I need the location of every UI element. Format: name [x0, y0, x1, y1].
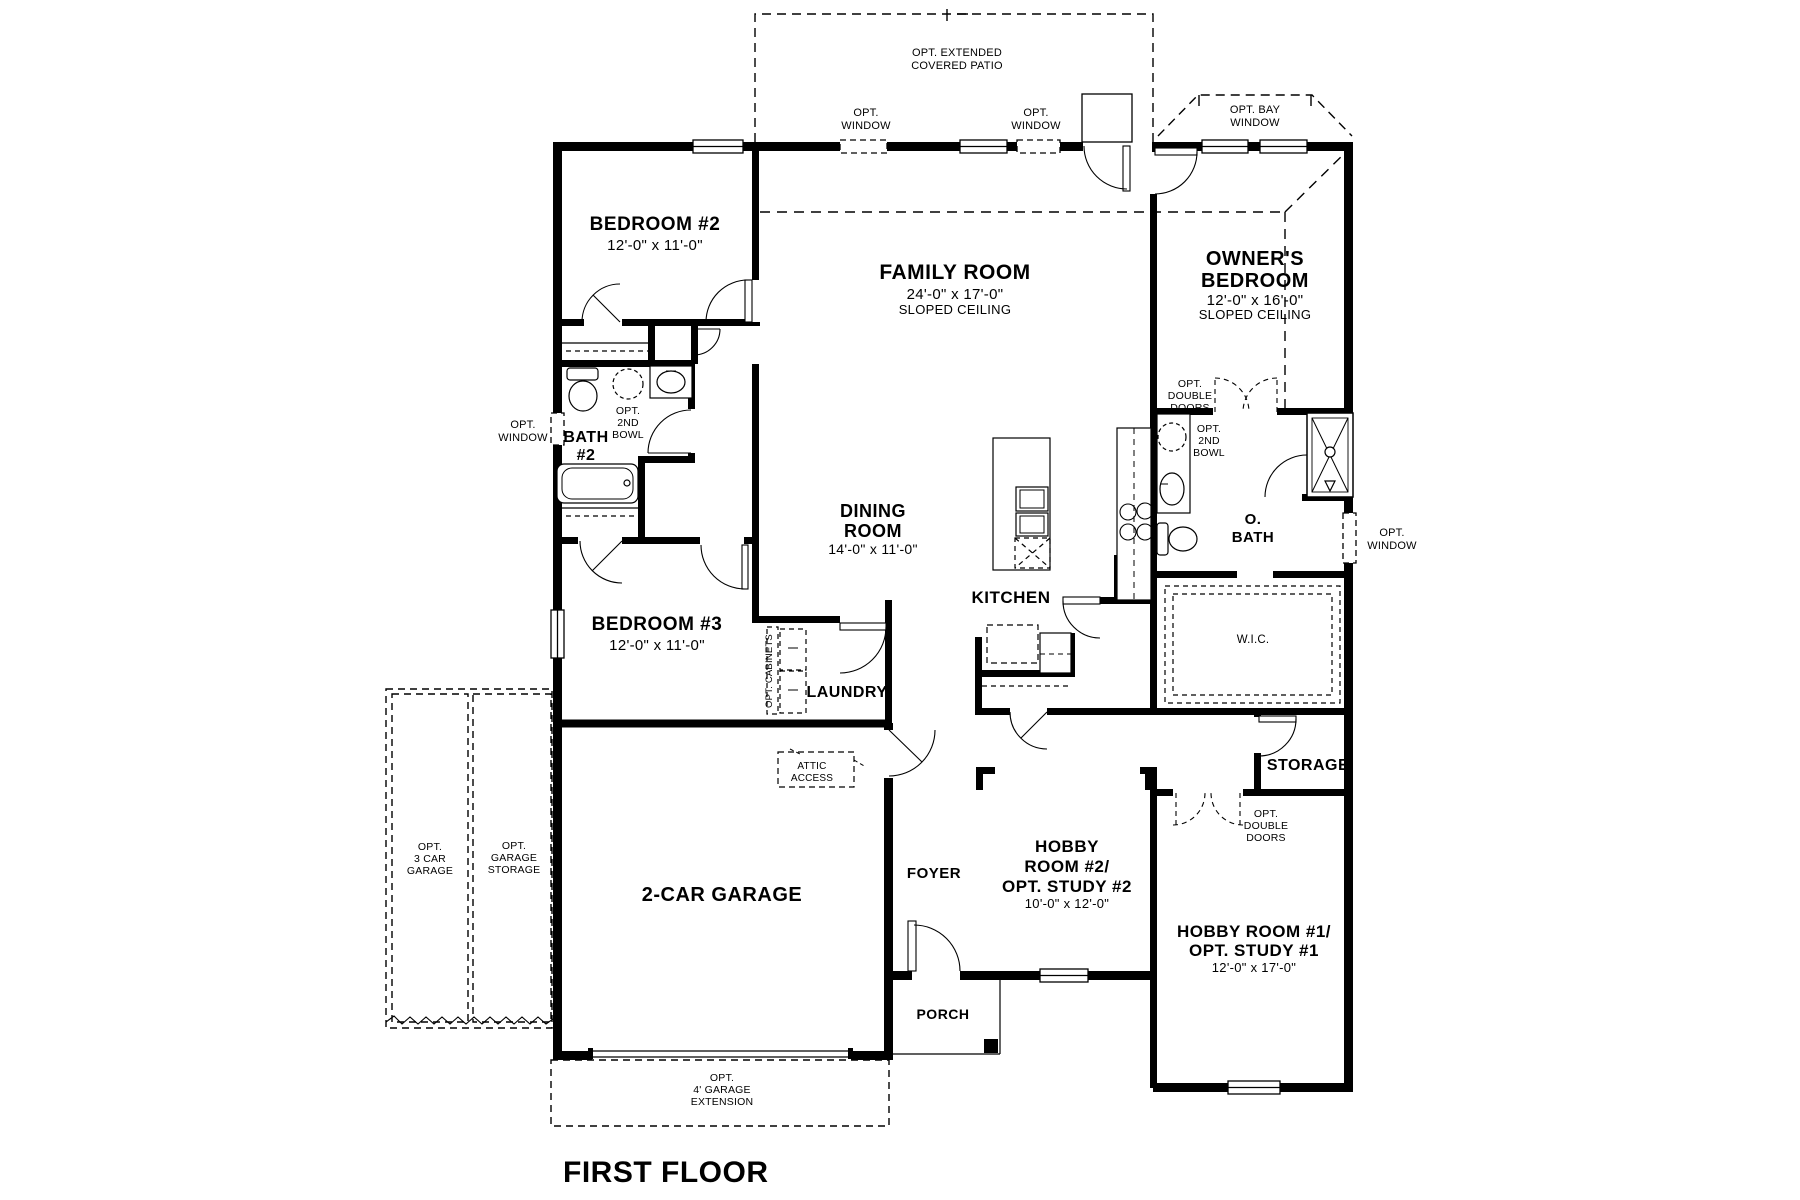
opt-garage-storage-label-b: GARAGE [491, 852, 537, 864]
bedroom2-closet-door [582, 284, 622, 329]
laundry-door [840, 623, 886, 673]
bath2-tub [557, 464, 638, 503]
family-room-window [960, 140, 1007, 153]
bath2-toilet [567, 368, 598, 411]
hobby2-dims: 10'-0" x 12'-0" [1025, 896, 1110, 911]
bedroom2-dims: 12'-0" x 11'-0" [607, 237, 703, 254]
bath2-label-1: BATH [563, 429, 608, 446]
opt-garage-storage-label-a: OPT. [502, 840, 526, 852]
owners-bedroom-label-2: BEDROOM [1201, 270, 1309, 292]
bedroom3-closet-shelf [557, 508, 640, 516]
opt-3car-garage-label-b: 3 CAR [414, 853, 446, 865]
opt-window-label-bath2-a: OPT. [510, 419, 535, 431]
opt-window-label-top2-a: OPT. [1023, 107, 1048, 119]
opt-window-obath [1343, 513, 1356, 563]
opt-double-doors-owners [1215, 378, 1277, 412]
bedroom2-closet-shelf [557, 343, 650, 351]
attic-access-label-a: ATTIC [797, 761, 826, 772]
bath2-door [648, 410, 691, 453]
bath2-opt-second-bowl [613, 369, 643, 399]
patio-door [1082, 94, 1152, 191]
opt-patio-ticks [947, 9, 968, 21]
attic-access-label-b: ACCESS [791, 773, 833, 784]
patio-label-2: COVERED PATIO [911, 60, 1003, 72]
hobby2-opening-stub-left [980, 767, 996, 790]
opt-cabinets-label: OPT. CABINETS [764, 634, 775, 708]
owners-bedroom-note: SLOPED CEILING [1199, 307, 1312, 322]
obath-label-2: BATH [1232, 529, 1275, 546]
opt-2nd-bowl-bath2-b: 2ND [617, 417, 639, 429]
owners-bedroom-door [1148, 148, 1197, 194]
opt-double-doors-owners-b: DOUBLE [1168, 390, 1212, 402]
hobby1-window [1228, 1081, 1280, 1094]
owners-bedroom-label-1: OWNER'S [1206, 248, 1304, 270]
patio-label-1: OPT. EXTENDED [912, 47, 1002, 59]
bedroom3-dims: 12'-0" x 11'-0" [609, 637, 705, 654]
family-room-dims: 24'-0" x 17'-0" [907, 286, 1004, 303]
opt-2nd-bowl-bath2-c: BOWL [612, 429, 644, 441]
opt-window-label-top2-b: WINDOW [1011, 120, 1061, 132]
dining-room-label-2: ROOM [844, 521, 902, 541]
opt-garage-extension-label-c: EXTENSION [691, 1096, 753, 1108]
opt-window-top-2 [1017, 140, 1060, 153]
hobby1-label-1: HOBBY ROOM #1/ [1177, 922, 1331, 941]
hobby2-opening-stub-right [1140, 767, 1153, 790]
dining-room-dims: 14'-0" x 11'-0" [828, 541, 918, 557]
front-window [1040, 969, 1088, 982]
plan-title: FIRST FLOOR [563, 1156, 768, 1189]
laundry-label: LAUNDRY [806, 684, 887, 701]
opt-double-doors-hobby1-c: DOORS [1246, 832, 1286, 844]
obath-label-1: O. [1245, 511, 1262, 528]
mudroom-counter [1040, 633, 1071, 673]
floorplan-sheet: OPT. EXTENDED COVERED PATIO OPT. WINDOW … [0, 0, 1800, 1200]
opt-window-label-top1-a: OPT. [853, 107, 878, 119]
wic-label: W.I.C. [1237, 634, 1270, 646]
family-room-note: SLOPED CEILING [899, 302, 1012, 317]
first-floor-plan: OPT. EXTENDED COVERED PATIO OPT. WINDOW … [0, 0, 1800, 1200]
bedroom2-window [693, 140, 743, 153]
hobby2-label-1: HOBBY [1035, 837, 1099, 856]
bedroom2-door [706, 280, 761, 322]
hobby2-label-2: ROOM #2/ [1024, 857, 1109, 876]
bath2-vanity [650, 366, 692, 398]
obath-vanity [1157, 414, 1190, 513]
bedroom2-label: BEDROOM #2 [590, 214, 721, 235]
opt-double-doors-owners-c: DOORS [1170, 402, 1210, 414]
porch-label: PORCH [916, 1006, 969, 1022]
obath-shower [1307, 413, 1353, 497]
opt-window-label-bath2-b: WINDOW [498, 432, 548, 444]
opt-2nd-bowl-obath-b: 2ND [1198, 435, 1220, 447]
opt-window-bath2 [551, 413, 564, 445]
break-line [386, 1016, 553, 1024]
mudroom-opt-fridge [987, 625, 1038, 663]
obath-toilet [1157, 523, 1197, 555]
opt-3car-garage-label-c: GARAGE [407, 865, 453, 877]
owners-bedroom-window-2 [1260, 140, 1307, 153]
hall-door [701, 545, 748, 589]
opt-garage-storage-label-c: STORAGE [488, 864, 541, 876]
opt-2nd-bowl-obath-c: BOWL [1193, 447, 1225, 459]
opt-window-top-1 [840, 140, 887, 153]
opt-double-doors-hobby1 [1173, 793, 1243, 825]
kitchen-counter [1117, 428, 1153, 600]
hobby2-label-3: OPT. STUDY #2 [1002, 877, 1132, 896]
kitchen-island [993, 438, 1050, 570]
kitchen-hall-door [1063, 597, 1100, 638]
bedroom3-door [580, 541, 622, 583]
owners-bedroom-window-1 [1202, 140, 1248, 153]
opt-bay-window-label-b: WINDOW [1230, 117, 1280, 129]
opt-2nd-bowl-obath-a: OPT. [1197, 423, 1221, 435]
opt-window-label-obath-b: WINDOW [1367, 540, 1417, 552]
bedroom3-label: BEDROOM #3 [592, 614, 723, 635]
front-door [908, 921, 960, 971]
opt-garage-extension-label-a: OPT. [710, 1072, 734, 1084]
opt-double-doors-hobby1-a: OPT. [1254, 808, 1278, 820]
shower-door [1265, 455, 1307, 497]
opt-garage-extension-label-b: 4' GARAGE [693, 1084, 751, 1096]
opt-window-label-obath-a: OPT. [1379, 527, 1404, 539]
bath2-label-2: #2 [577, 447, 596, 464]
storage-label: STORAGE [1267, 757, 1349, 774]
hobby2-hall-door [1010, 712, 1047, 749]
opt-window-label-top1-b: WINDOW [841, 120, 891, 132]
foyer-label: FOYER [907, 865, 961, 882]
storage-door [1259, 716, 1296, 756]
garage-door [588, 1048, 853, 1059]
garage-entry-door [889, 730, 935, 776]
opt-double-doors-hobby1-b: DOUBLE [1244, 820, 1288, 832]
hobby1-label-2: OPT. STUDY #1 [1189, 941, 1319, 960]
opt-2nd-bowl-bath2-a: OPT. [616, 405, 640, 417]
garage-label: 2-CAR GARAGE [642, 884, 802, 906]
hobby1-dims: 12'-0" x 17'-0" [1212, 960, 1297, 975]
dining-room-label-1: DINING [840, 501, 906, 521]
porch-column [984, 1039, 998, 1053]
bedroom3-window [551, 610, 564, 658]
kitchen-label: KITCHEN [971, 588, 1050, 607]
opt-bay-window-label-a: OPT. BAY [1230, 104, 1281, 116]
opt-3car-garage-label-a: OPT. [418, 841, 442, 853]
opt-double-doors-owners-a: OPT. [1178, 378, 1202, 390]
family-room-label: FAMILY ROOM [879, 261, 1030, 284]
